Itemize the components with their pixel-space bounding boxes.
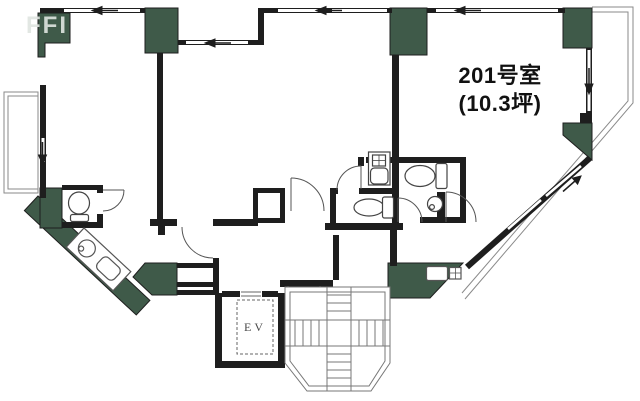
arrow-icon xyxy=(455,7,481,15)
pillar-top-right xyxy=(563,8,592,48)
pillar-top-1 xyxy=(145,8,178,53)
floor-plan-drawing xyxy=(0,0,640,401)
toilet-icon xyxy=(354,197,394,218)
kitchen-counter-icon xyxy=(427,267,448,281)
door-swing-arc xyxy=(398,198,422,222)
door-swing-arc xyxy=(291,178,324,211)
stove-icon xyxy=(450,268,462,280)
room-area: (10.3坪) xyxy=(425,90,575,118)
pillar-right-lower xyxy=(563,123,592,160)
door-swing-arc xyxy=(103,190,124,211)
elevator-label: EV xyxy=(236,300,274,354)
arrow-icon xyxy=(92,7,118,15)
door-swing-arc xyxy=(337,166,361,190)
staircase-icon xyxy=(285,287,390,391)
window-strips xyxy=(42,9,591,229)
pillar-top-2 xyxy=(390,8,427,55)
floor-plan: FFI 201号室 (10.3坪) EV xyxy=(0,0,640,401)
room-number: 201号室 xyxy=(425,62,575,90)
door-swing-arc xyxy=(182,227,213,258)
toilet-icon xyxy=(405,164,447,189)
toilet-icon xyxy=(69,192,90,222)
watermark-text: FFI xyxy=(26,12,68,40)
arrow-icon xyxy=(316,7,342,15)
hand-basin-icon xyxy=(428,197,443,212)
room-label: 201号室 (10.3坪) xyxy=(425,62,575,117)
duct-shaft xyxy=(258,193,280,218)
sink-icon xyxy=(369,152,391,185)
